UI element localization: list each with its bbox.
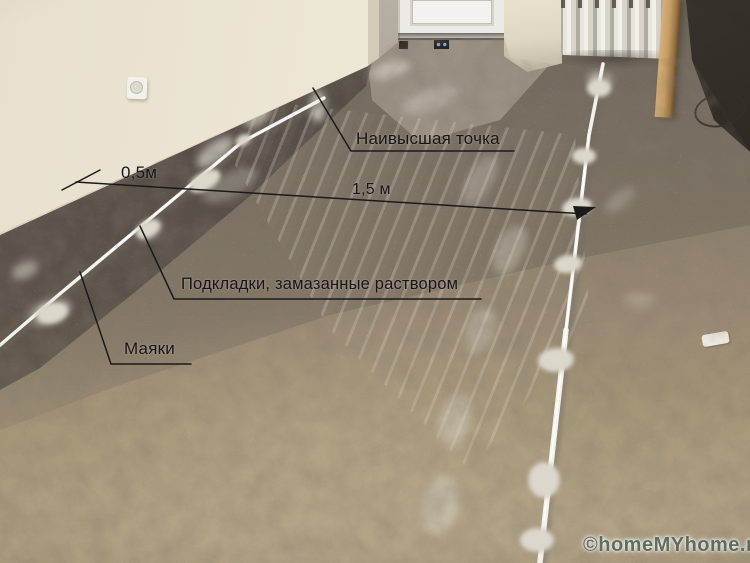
watermark: ©homeMYhome.ru [583,534,750,557]
label-distance-0-5m: 0,5м [121,164,157,183]
dimension-arrow-left [62,170,100,190]
label-highest-point: Наивысшая точка [356,130,500,149]
annotated-room-photo: Наивысшая точка 0,5м 1,5 м Подкладки, за… [0,0,750,563]
label-distance-1-5m: 1,5 м [352,181,391,199]
label-beacons: Маяки [124,340,175,359]
label-pads: Подкладки, замазанные раствором [181,275,458,293]
